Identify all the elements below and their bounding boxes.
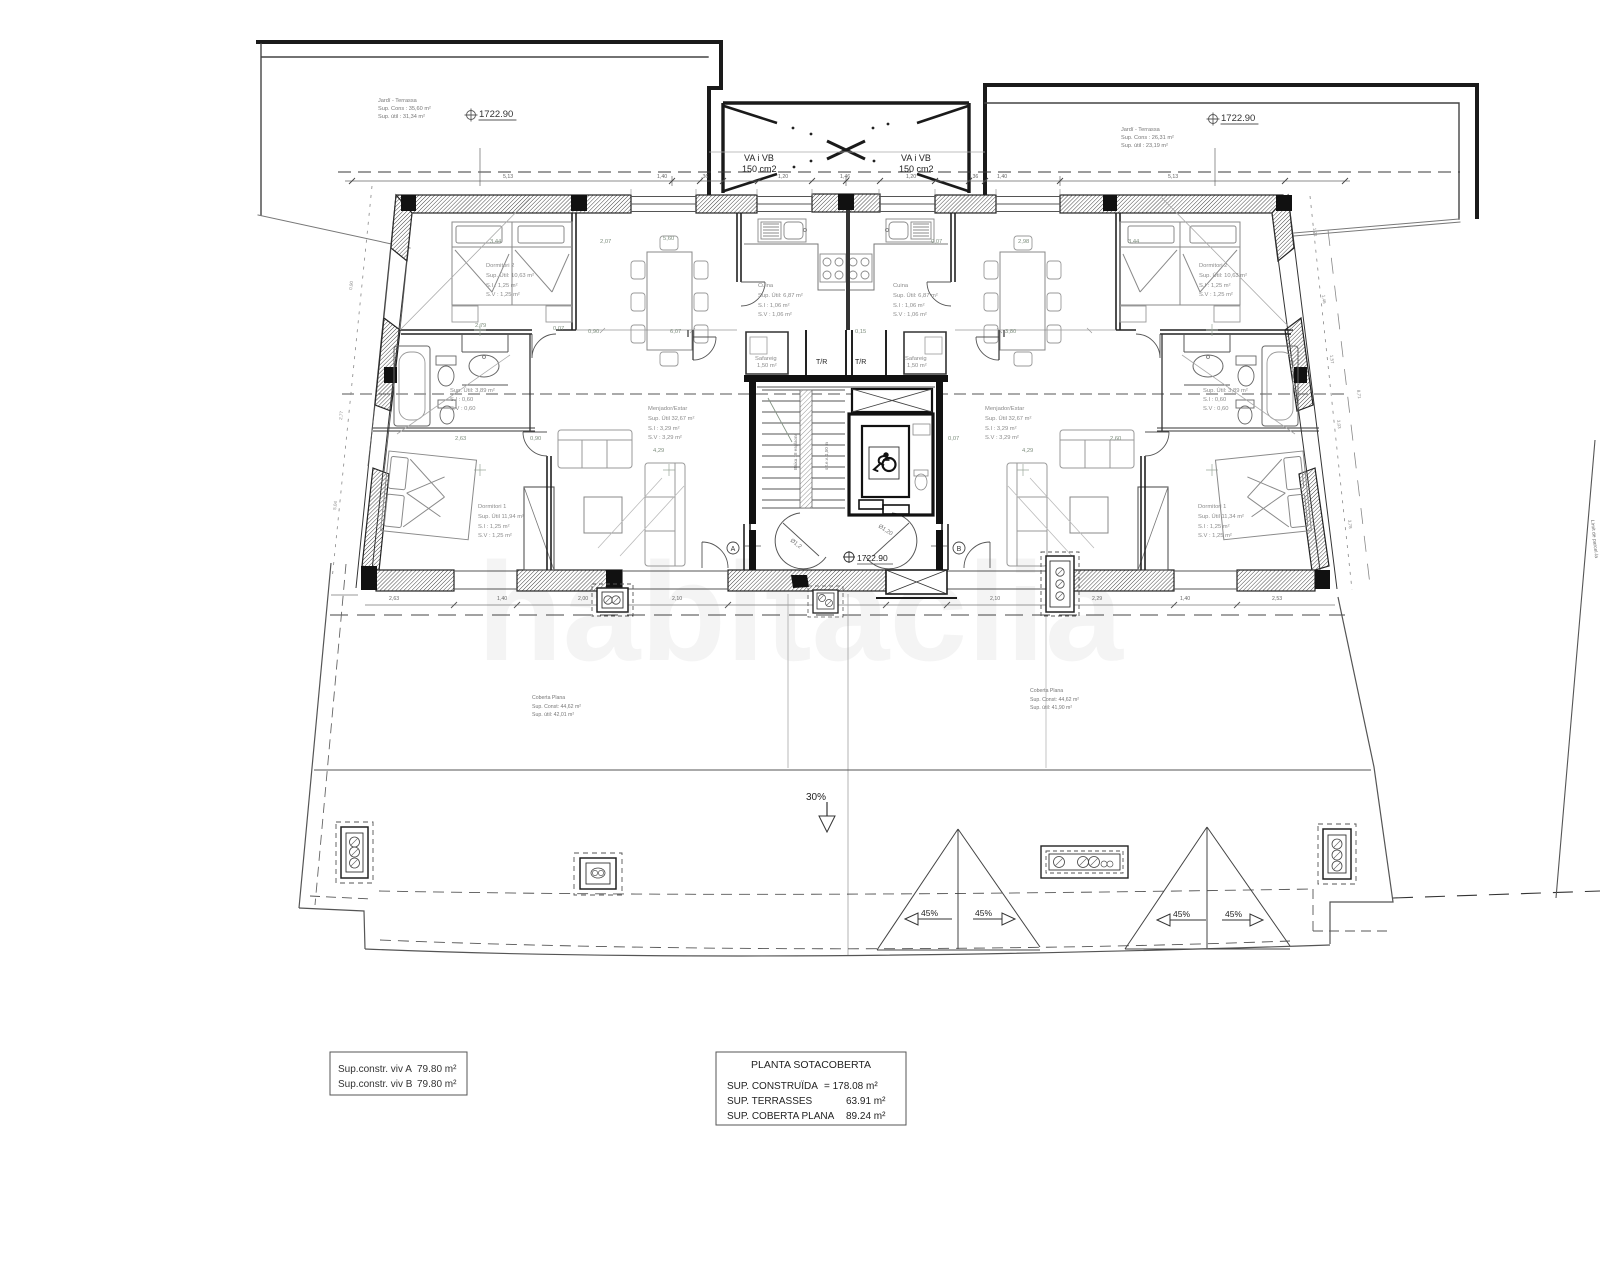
svg-text:2,63: 2,63 <box>389 596 399 602</box>
svg-text:Coberta Plana: Coberta Plana <box>1030 688 1063 694</box>
svg-text:1722.90: 1722.90 <box>479 109 513 120</box>
svg-text:Jardí - Terrassa: Jardí - Terrassa <box>378 98 418 104</box>
svg-text:S.I : 3,29 m²: S.I : 3,29 m² <box>648 426 680 432</box>
svg-text:150 cm2: 150 cm2 <box>742 164 777 174</box>
svg-text:2,10: 2,10 <box>672 596 682 602</box>
svg-text:S.I : 3,29 m²: S.I : 3,29 m² <box>985 426 1017 432</box>
svg-text:Sup. Útil: 10,63 m²: Sup. Útil: 10,63 m² <box>486 272 534 279</box>
svg-text:VA i VB: VA i VB <box>901 153 931 163</box>
svg-text:Dormitori 2: Dormitori 2 <box>1199 263 1227 269</box>
svg-text:S.V : 0,60: S.V : 0,60 <box>450 406 475 412</box>
svg-text:0,07: 0,07 <box>931 239 942 245</box>
svg-text:5,13: 5,13 <box>503 174 513 180</box>
svg-text:S.V : 0,60: S.V : 0,60 <box>1203 406 1228 412</box>
svg-text:30%: 30% <box>806 792 826 803</box>
svg-text:SUP. TERRASSES: SUP. TERRASSES <box>727 1096 813 1107</box>
svg-text:Sup. útil : 31,34 m²: Sup. útil : 31,34 m² <box>378 114 425 120</box>
svg-text:S.I : 1,25 m²: S.I : 1,25 m² <box>1198 524 1230 530</box>
svg-text:S.I : 1,25 m²: S.I : 1,25 m² <box>478 524 510 530</box>
svg-text:2,00: 2,00 <box>578 596 588 602</box>
svg-text:Sup. útil: 42,01 m²: Sup. útil: 42,01 m² <box>532 712 574 718</box>
svg-text:A: A <box>731 546 736 553</box>
svg-text:Menjador/Estar: Menjador/Estar <box>648 406 687 412</box>
svg-text:0,15: 0,15 <box>855 329 866 335</box>
svg-text:1,40: 1,40 <box>997 174 1007 180</box>
svg-text:1,40: 1,40 <box>497 596 507 602</box>
svg-text:0,90: 0,90 <box>530 436 541 442</box>
svg-text:1,40: 1,40 <box>657 174 667 180</box>
svg-text:63.91 m²: 63.91 m² <box>846 1096 886 1107</box>
svg-text:Safareig: Safareig <box>905 356 927 362</box>
svg-text:89.24 m²: 89.24 m² <box>846 1111 886 1122</box>
svg-text:2,63: 2,63 <box>455 436 466 442</box>
svg-text:habitaclia: habitaclia <box>477 533 1124 690</box>
svg-text:S.V : 1,25 m²: S.V : 1,25 m² <box>1199 292 1233 298</box>
svg-text:1,20: 1,20 <box>778 174 788 180</box>
svg-text:Sup.constr. viv B: Sup.constr. viv B <box>338 1079 413 1090</box>
svg-text:Sup.constr. viv A: Sup.constr. viv A <box>338 1064 412 1075</box>
svg-text:3,44: 3,44 <box>1128 239 1140 245</box>
svg-text:2,53: 2,53 <box>1272 596 1282 602</box>
svg-text:5,60: 5,60 <box>663 236 674 242</box>
svg-text:3,44: 3,44 <box>490 239 502 245</box>
svg-text:S.I : 0,60: S.I : 0,60 <box>450 397 473 403</box>
svg-text:Sup. Cons : 35,60 m²: Sup. Cons : 35,60 m² <box>378 106 431 112</box>
svg-text:T/R: T/R <box>816 359 827 366</box>
svg-text:1722.90: 1722.90 <box>857 553 888 563</box>
svg-text:S.I : 1,25 m²: S.I : 1,25 m² <box>486 283 518 289</box>
svg-text:45%: 45% <box>1225 909 1242 919</box>
svg-text:Safareig: Safareig <box>755 356 777 362</box>
svg-text:0,90: 0,90 <box>588 329 599 335</box>
svg-text:Sup. Const: 44,62 m²: Sup. Const: 44,62 m² <box>1030 697 1079 703</box>
svg-text:0,07: 0,07 <box>948 436 959 442</box>
svg-text:Sup. útil : 23,19 m²: Sup. útil : 23,19 m² <box>1121 143 1168 149</box>
svg-text:Sup. Útil 11,34 m²: Sup. Útil 11,34 m² <box>1198 513 1244 520</box>
svg-text:4,29: 4,29 <box>1022 448 1033 454</box>
svg-text:SUP. COBERTA PLANA: SUP. COBERTA PLANA <box>727 1111 835 1122</box>
svg-text:,36: ,36 <box>971 174 978 180</box>
svg-text:Coberta Plana: Coberta Plana <box>532 695 565 701</box>
svg-text:S.V : 1,06 m²: S.V : 1,06 m² <box>758 312 792 318</box>
svg-text:,36: ,36 <box>701 174 708 180</box>
svg-text:VA i VB: VA i VB <box>744 153 774 163</box>
svg-text:Cuina: Cuina <box>758 283 774 289</box>
svg-text:150 cm2: 150 cm2 <box>899 164 934 174</box>
svg-text:Sup. Útil: 3,89 m²: Sup. Útil: 3,89 m² <box>1203 387 1248 394</box>
svg-text:1,46: 1,46 <box>840 174 850 180</box>
svg-text:Sup. Útil 32,67 m²: Sup. Útil 32,67 m² <box>985 415 1031 422</box>
svg-text:3,80: 3,80 <box>1005 329 1016 335</box>
svg-text:Sup. Útil 32,67 m²: Sup. Útil 32,67 m² <box>648 415 694 422</box>
svg-text:45%: 45% <box>921 908 938 918</box>
svg-text:T/R: T/R <box>855 359 866 366</box>
svg-text:1722.90: 1722.90 <box>1221 113 1255 124</box>
svg-text:Dormitori 1: Dormitori 1 <box>1198 504 1226 510</box>
svg-text:6,07: 6,07 <box>670 329 681 335</box>
svg-text:Jardí - Terrassa: Jardí - Terrassa <box>1121 127 1161 133</box>
svg-text:45%: 45% <box>975 908 992 918</box>
svg-text:2,29: 2,29 <box>1092 596 1102 602</box>
svg-text:2,79: 2,79 <box>475 323 486 329</box>
svg-text:79.80 m²: 79.80 m² <box>417 1064 457 1075</box>
svg-text:Sup. Útil 11,94 m²: Sup. Útil 11,94 m² <box>478 513 524 520</box>
svg-text:S.V : 1,25 m²: S.V : 1,25 m² <box>486 292 520 298</box>
svg-text:Sup. Const: 44,62 m²: Sup. Const: 44,62 m² <box>532 704 581 710</box>
svg-text:5,13: 5,13 <box>1168 174 1178 180</box>
svg-text:B: B <box>957 546 962 553</box>
svg-text:2,98: 2,98 <box>1018 239 1029 245</box>
svg-text:S.I : 1,06 m²: S.I : 1,06 m² <box>893 303 925 309</box>
svg-text:Sup. Cons : 26,31 m²: Sup. Cons : 26,31 m² <box>1121 135 1174 141</box>
svg-text:S.V : 1,25 m²: S.V : 1,25 m² <box>1198 533 1232 539</box>
svg-text:Baixa 18 esglaons: Baixa 18 esglaons <box>793 432 798 470</box>
svg-text:0,07: 0,07 <box>553 326 564 332</box>
svg-text:4,29: 4,29 <box>653 448 664 454</box>
svg-text:Sup. Útil: 6,87 m²: Sup. Útil: 6,87 m² <box>758 292 803 299</box>
svg-text:45%: 45% <box>1173 909 1190 919</box>
svg-text:S.V : 3,29 m²: S.V : 3,29 m² <box>985 435 1019 441</box>
svg-text:1,50 m²: 1,50 m² <box>757 363 777 369</box>
svg-text:Sup. Útil: 10,63 m²: Sup. Útil: 10,63 m² <box>1199 272 1247 279</box>
svg-text:S.I : 1,06 m²: S.I : 1,06 m² <box>758 303 790 309</box>
svg-text:Sup. útil: 41,90 m²: Sup. útil: 41,90 m² <box>1030 705 1072 711</box>
svg-text:s.t.e.v. 1,50 m: s.t.e.v. 1,50 m <box>824 442 829 470</box>
svg-text:1,40: 1,40 <box>1180 596 1190 602</box>
svg-text:2,10: 2,10 <box>990 596 1000 602</box>
svg-text:Sup. Útil: 3,89 m²: Sup. Útil: 3,89 m² <box>450 387 495 394</box>
svg-text:PLANTA SOTACOBERTA: PLANTA SOTACOBERTA <box>751 1059 871 1071</box>
svg-text:Dormitori 1: Dormitori 1 <box>478 504 506 510</box>
svg-text:S.I : 0,60: S.I : 0,60 <box>1203 397 1226 403</box>
svg-text:79.80 m²: 79.80 m² <box>417 1079 457 1090</box>
svg-text:1,50 m²: 1,50 m² <box>907 363 927 369</box>
svg-text:S.V : 3,29 m²: S.V : 3,29 m² <box>648 435 682 441</box>
svg-text:2,60: 2,60 <box>1110 436 1121 442</box>
svg-text:SUP. CONSTRUÏDA: SUP. CONSTRUÏDA <box>727 1080 818 1092</box>
svg-text:2,07: 2,07 <box>600 239 611 245</box>
svg-text:Sup. Útil: 6,87 m²: Sup. Útil: 6,87 m² <box>893 292 938 299</box>
svg-text:S.V : 1,06 m²: S.V : 1,06 m² <box>893 312 927 318</box>
svg-text:Cuina: Cuina <box>893 283 909 289</box>
svg-text:1,20: 1,20 <box>906 174 916 180</box>
svg-text:Dormitori 2: Dormitori 2 <box>486 263 514 269</box>
svg-text:Menjador/Estar: Menjador/Estar <box>985 406 1024 412</box>
svg-text:S.I : 1,25 m²: S.I : 1,25 m² <box>1199 283 1231 289</box>
svg-text:= 178.08 m²: = 178.08 m² <box>824 1081 878 1092</box>
svg-text:S.V : 1,25 m²: S.V : 1,25 m² <box>478 533 512 539</box>
